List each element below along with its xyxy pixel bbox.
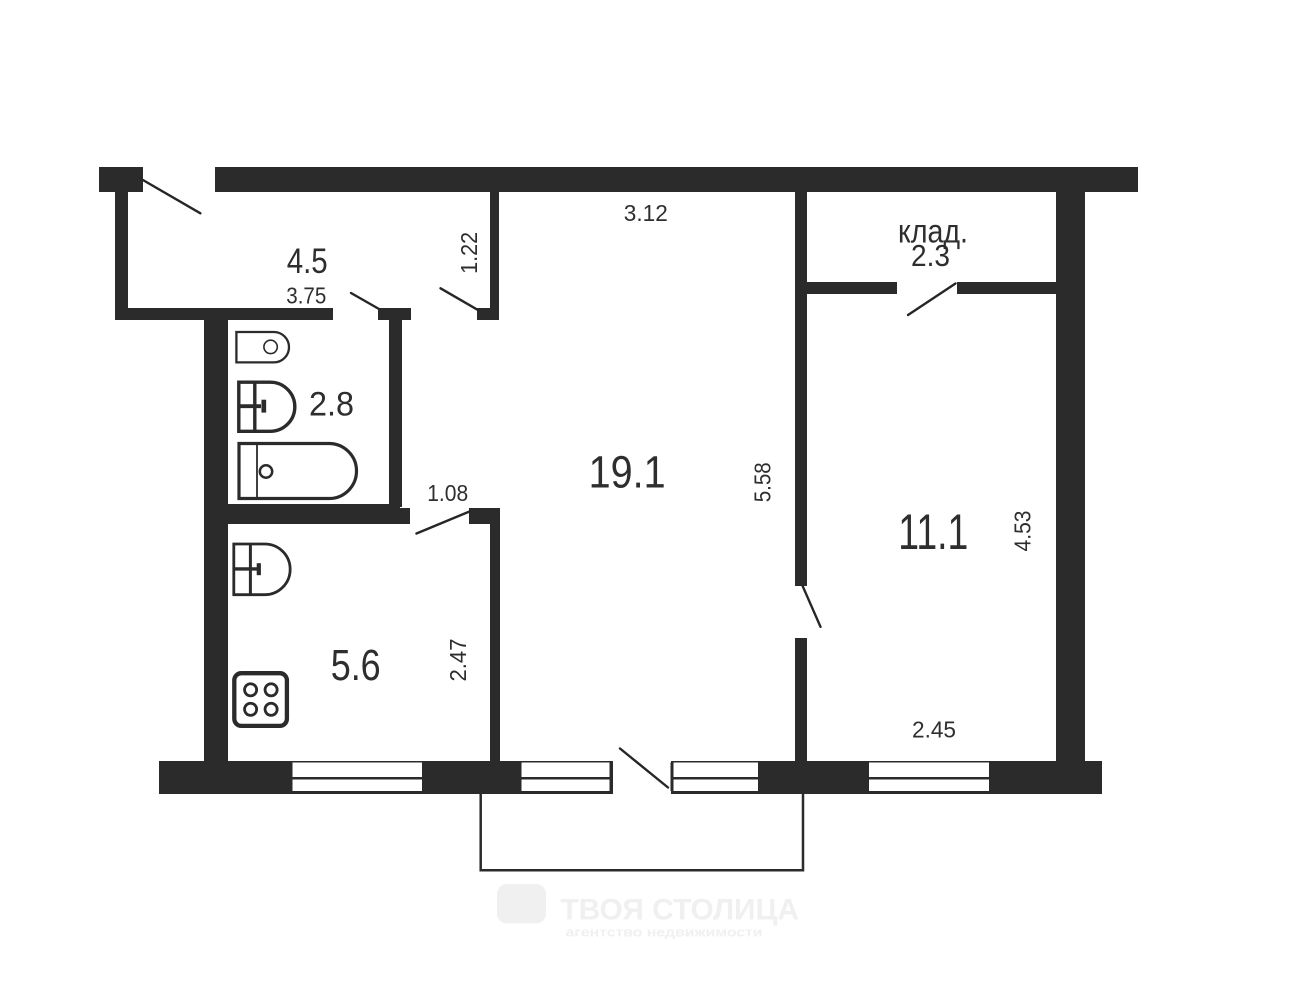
svg-text:2.47: 2.47 [445,639,471,682]
svg-text:4.5: 4.5 [287,242,328,281]
svg-text:1.08: 1.08 [427,480,468,506]
svg-text:4.53: 4.53 [1010,511,1036,552]
svg-text:агентство недвижимости: агентство недвижимости [566,926,763,940]
svg-text:3.75: 3.75 [286,283,326,309]
svg-text:11.1: 11.1 [898,504,968,560]
svg-text:5.58: 5.58 [749,462,775,502]
svg-text:19.1: 19.1 [589,446,666,497]
svg-text:2.3: 2.3 [911,238,950,273]
svg-text:ТВОЯ СТОЛИЦА: ТВОЯ СТОЛИЦА [560,894,799,927]
svg-text:2.8: 2.8 [309,386,354,424]
svg-text:5.6: 5.6 [331,641,381,690]
svg-text:3.12: 3.12 [624,200,668,226]
svg-text:1.22: 1.22 [456,232,482,274]
svg-text:2.45: 2.45 [912,717,956,743]
